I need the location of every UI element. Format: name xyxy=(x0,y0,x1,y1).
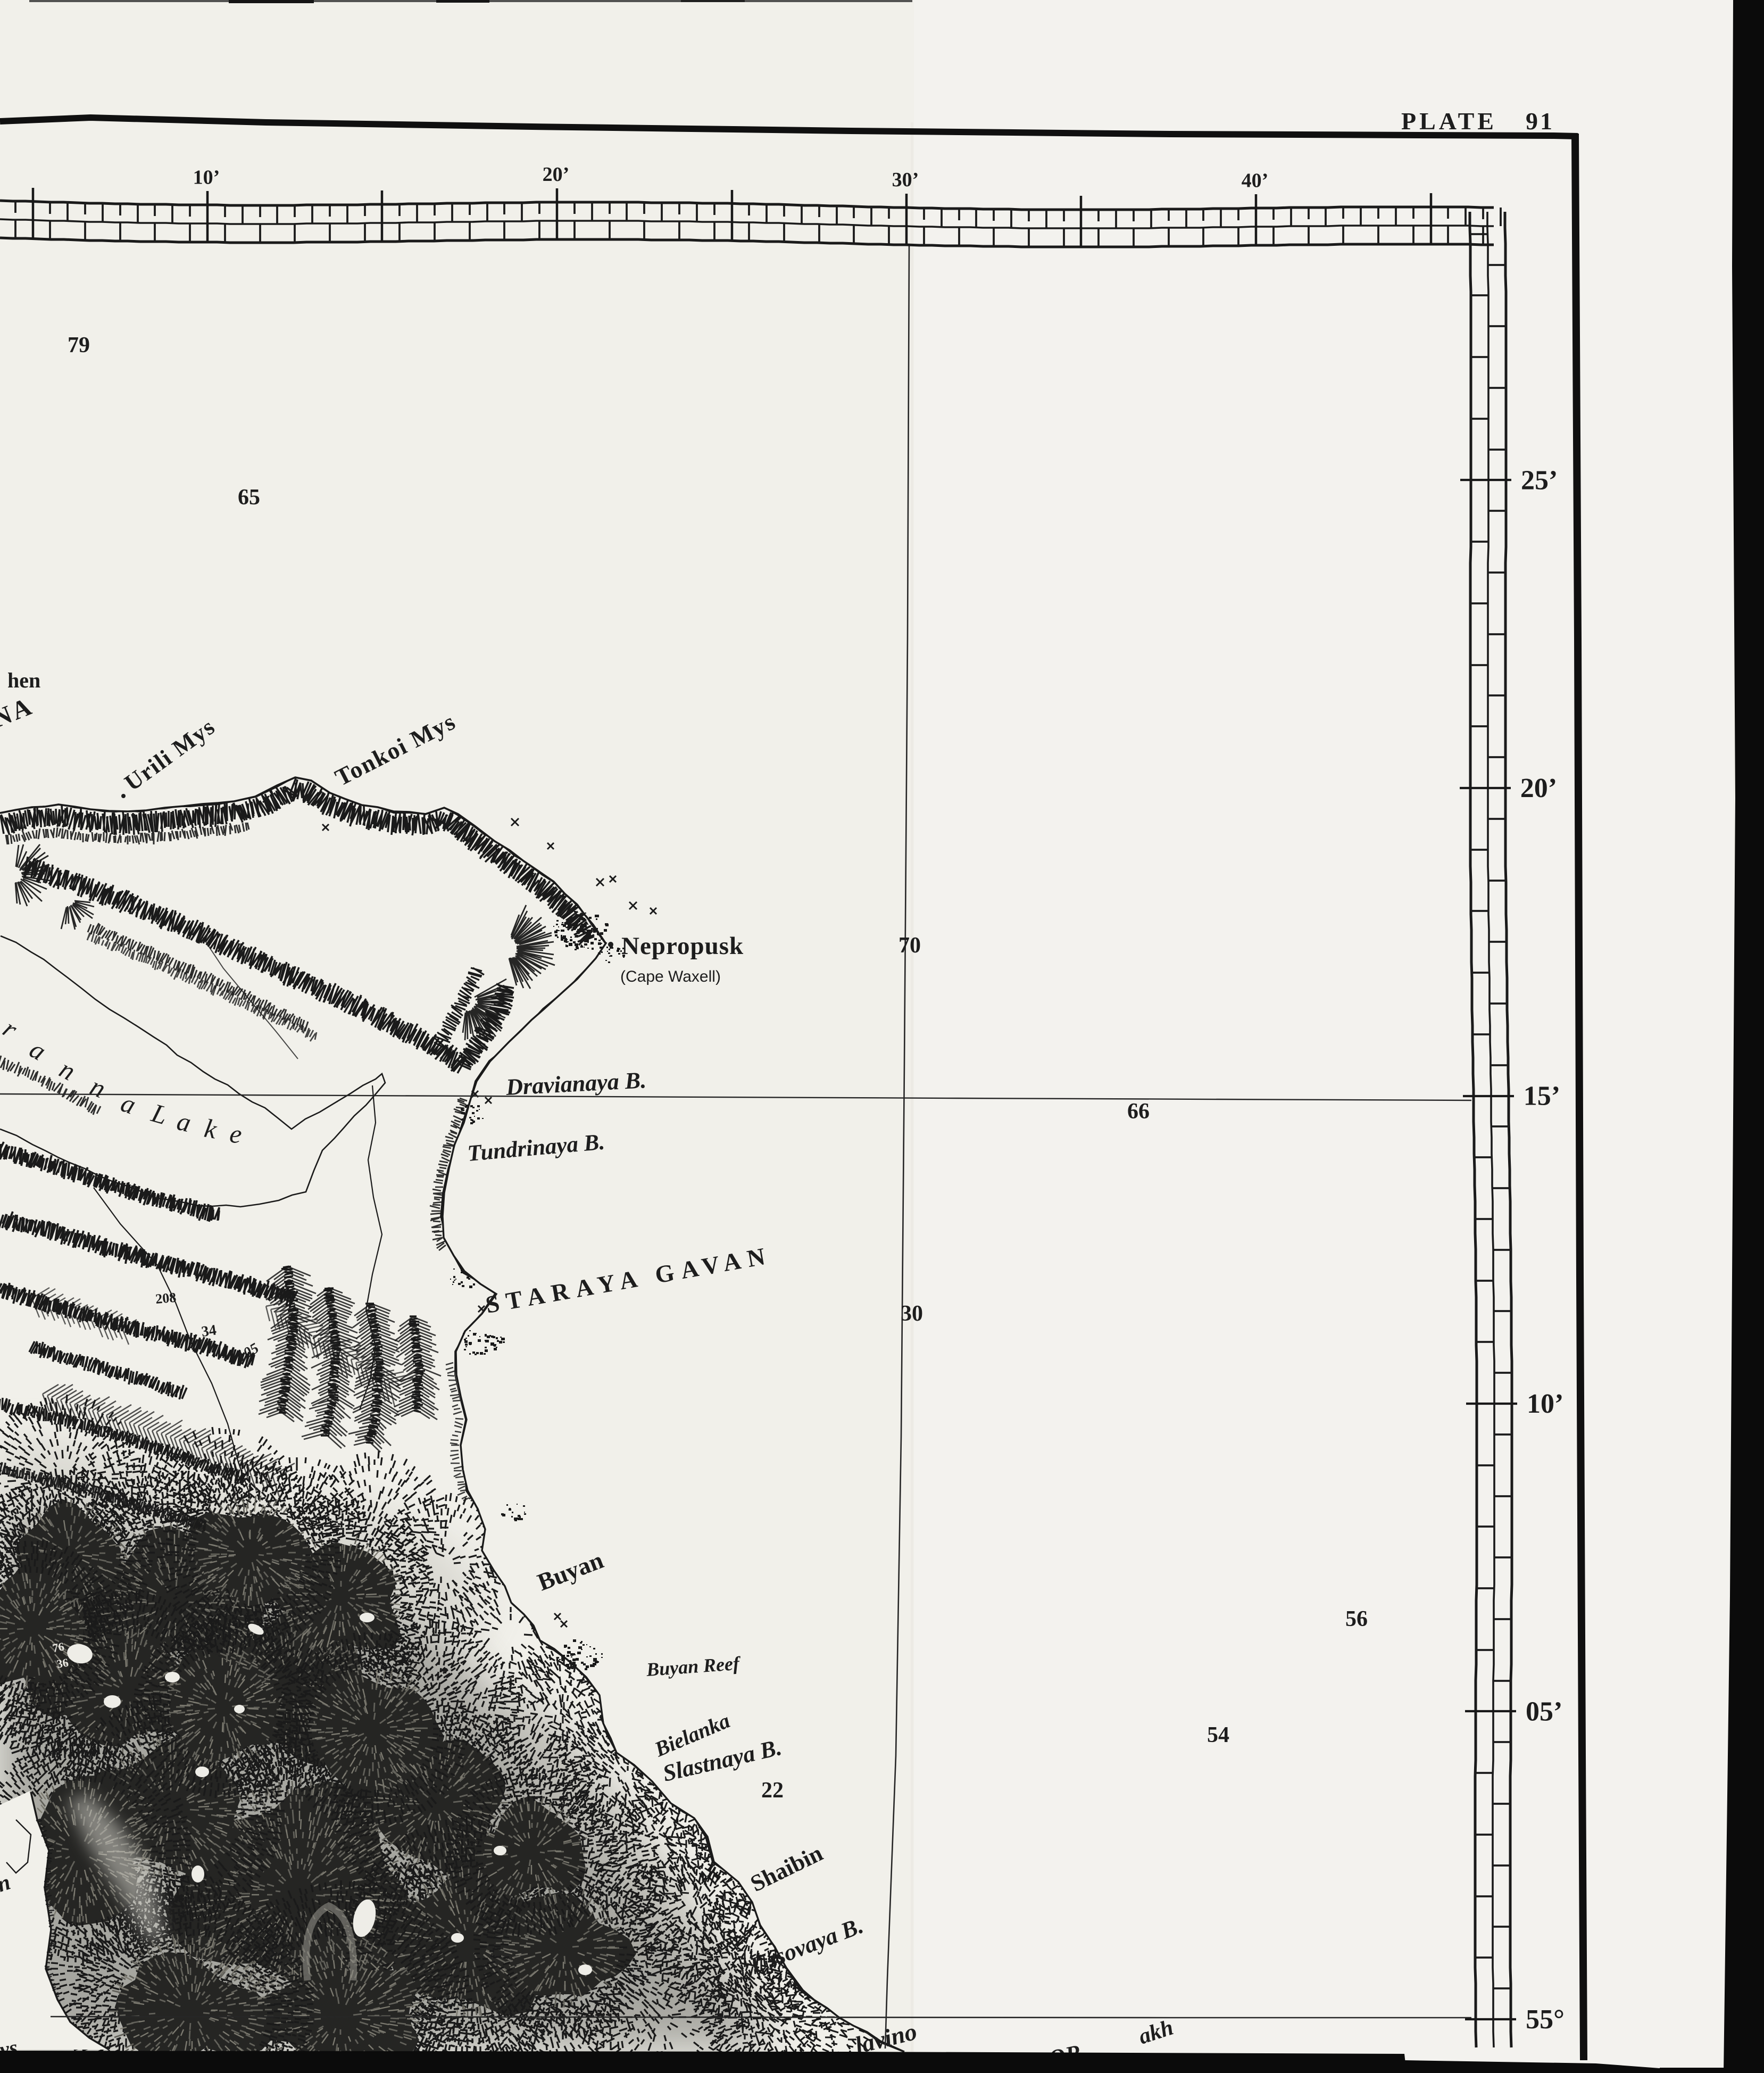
svg-text:55°: 55° xyxy=(1526,2004,1565,2035)
svg-text:20’: 20’ xyxy=(543,163,570,186)
svg-text:54: 54 xyxy=(1207,1723,1229,1747)
svg-text:30: 30 xyxy=(901,1301,923,1326)
svg-text:40’: 40’ xyxy=(1242,169,1269,192)
svg-text:10’: 10’ xyxy=(193,166,220,188)
svg-text:76: 76 xyxy=(52,1639,65,1654)
svg-text:25’: 25’ xyxy=(1521,466,1558,496)
svg-text:05’: 05’ xyxy=(1526,1697,1562,1727)
svg-text:56: 56 xyxy=(1345,1607,1368,1631)
svg-text:(Cape Waxell): (Cape Waxell) xyxy=(620,968,721,985)
svg-text:70: 70 xyxy=(898,933,921,958)
svg-text:Nepropusk: Nepropusk xyxy=(621,932,744,960)
svg-text:79: 79 xyxy=(68,333,90,358)
svg-text:hen: hen xyxy=(7,668,40,692)
svg-text:36: 36 xyxy=(56,1655,70,1670)
svg-text:10’: 10’ xyxy=(1527,1389,1563,1419)
svg-text:66: 66 xyxy=(1127,1099,1150,1124)
svg-text:15’: 15’ xyxy=(1524,1081,1560,1112)
svg-text:34: 34 xyxy=(201,1322,218,1340)
svg-text:20’: 20’ xyxy=(1520,773,1557,803)
svg-text:22: 22 xyxy=(761,1778,784,1803)
svg-text:PLATE: PLATE xyxy=(1401,107,1497,135)
svg-text:65: 65 xyxy=(238,485,260,510)
svg-text:30’: 30’ xyxy=(892,169,919,191)
svg-text:91: 91 xyxy=(1526,107,1554,135)
svg-text:208: 208 xyxy=(155,1290,177,1307)
